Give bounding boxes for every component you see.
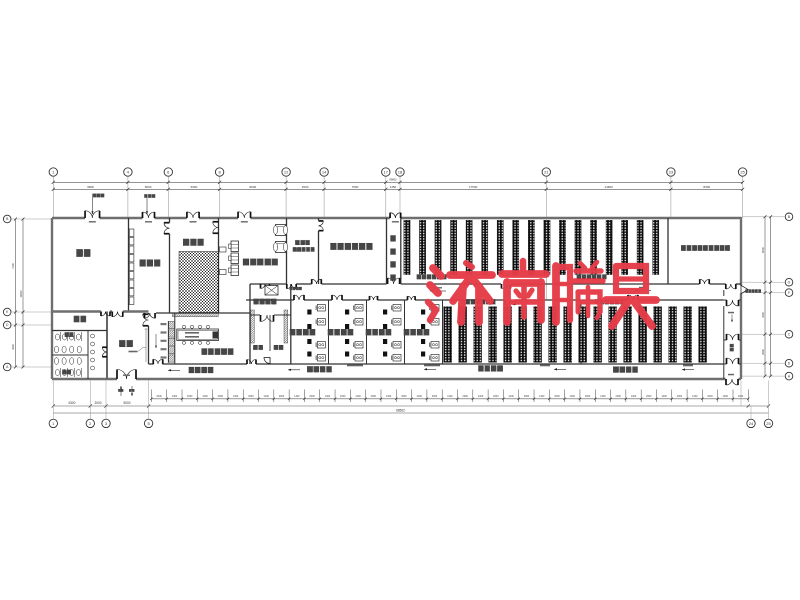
- svg-text:1400: 1400: [723, 395, 729, 398]
- svg-text:68502: 68502: [396, 409, 405, 413]
- svg-text:21: 21: [544, 169, 549, 174]
- svg-text:2000: 2000: [371, 395, 377, 398]
- svg-text:24: 24: [749, 421, 754, 426]
- svg-text:1400: 1400: [233, 395, 239, 398]
- svg-text:8000: 8000: [250, 185, 257, 189]
- svg-text:1400: 1400: [417, 395, 423, 398]
- svg-text:1450: 1450: [390, 185, 397, 189]
- svg-text:1400: 1400: [172, 395, 178, 398]
- svg-text:1400: 1400: [294, 395, 300, 398]
- svg-text:2000: 2000: [309, 395, 315, 398]
- svg-text:11500: 11500: [19, 290, 23, 298]
- svg-text:2000: 2000: [646, 395, 652, 398]
- svg-text:2000: 2000: [187, 395, 193, 398]
- svg-text:4500: 4500: [302, 185, 309, 189]
- svg-text:1400: 1400: [264, 395, 270, 398]
- svg-text:17500: 17500: [469, 185, 478, 189]
- svg-text:2000: 2000: [554, 395, 560, 398]
- svg-text:4300: 4300: [68, 401, 75, 405]
- svg-text:1400: 1400: [386, 395, 392, 398]
- svg-text:G: G: [788, 280, 791, 284]
- svg-text:1400: 1400: [570, 395, 576, 398]
- svg-text:9800: 9800: [87, 185, 94, 189]
- svg-text:5000: 5000: [145, 185, 152, 189]
- svg-text:1400: 1400: [631, 395, 637, 398]
- svg-text:1400: 1400: [508, 395, 514, 398]
- svg-text:4300: 4300: [11, 344, 15, 350]
- svg-text:1400: 1400: [202, 395, 208, 398]
- svg-text:23: 23: [669, 169, 674, 174]
- svg-text:1400: 1400: [539, 395, 545, 398]
- svg-text:2000: 2000: [493, 395, 499, 398]
- svg-text:14600: 14600: [604, 185, 613, 189]
- svg-text:2900: 2900: [761, 349, 765, 355]
- svg-text:F: F: [788, 291, 790, 295]
- svg-text:1400: 1400: [447, 395, 453, 398]
- svg-text:2000: 2000: [677, 395, 683, 398]
- svg-text:17: 17: [384, 169, 389, 174]
- svg-text:6300: 6300: [191, 185, 198, 189]
- svg-text:2000: 2000: [218, 395, 224, 398]
- svg-text:89802: 89802: [389, 178, 397, 182]
- svg-text:1400: 1400: [325, 395, 331, 398]
- svg-text:12: 12: [284, 169, 289, 174]
- svg-text:1400: 1400: [478, 395, 484, 398]
- svg-text:8300: 8300: [703, 185, 710, 189]
- svg-text:6500: 6500: [761, 247, 765, 253]
- svg-text:18: 18: [398, 169, 403, 174]
- svg-text:25: 25: [766, 421, 771, 426]
- svg-text:2000: 2000: [616, 395, 622, 398]
- svg-text:14: 14: [322, 169, 327, 174]
- svg-text:7500: 7500: [352, 185, 359, 189]
- svg-text:2000: 2000: [340, 395, 346, 398]
- svg-text:2000: 2000: [707, 395, 713, 398]
- svg-text:1400: 1400: [692, 395, 698, 398]
- svg-text:2000: 2000: [463, 395, 469, 398]
- svg-text:4150: 4150: [761, 312, 765, 318]
- svg-text:2000: 2000: [524, 395, 530, 398]
- svg-text:2000: 2000: [94, 401, 101, 405]
- svg-text:2000: 2000: [401, 395, 407, 398]
- svg-text:2000: 2000: [279, 395, 285, 398]
- svg-text:2000: 2000: [585, 395, 591, 398]
- svg-text:7200: 7200: [11, 263, 15, 269]
- svg-text:2000: 2000: [432, 395, 438, 398]
- svg-text:2000: 2000: [248, 395, 254, 398]
- svg-text:1400: 1400: [661, 395, 667, 398]
- svg-text:1400: 1400: [355, 395, 361, 398]
- svg-text:1400: 1400: [600, 395, 606, 398]
- svg-text:5000: 5000: [123, 401, 130, 405]
- svg-text:2000: 2000: [156, 395, 162, 398]
- svg-text:25: 25: [740, 169, 745, 174]
